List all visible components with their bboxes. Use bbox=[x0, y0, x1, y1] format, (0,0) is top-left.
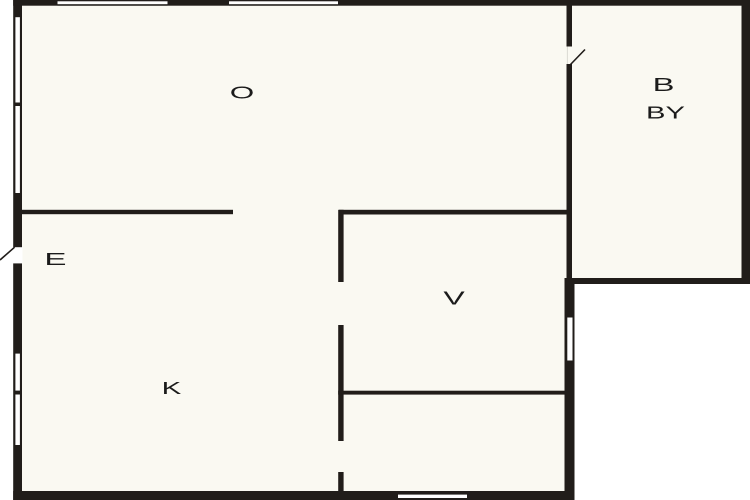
svg-text:V: V bbox=[443, 288, 465, 309]
svg-text:E: E bbox=[44, 249, 66, 269]
svg-text:BY: BY bbox=[646, 103, 685, 123]
svg-text:O: O bbox=[230, 83, 255, 103]
svg-text:K: K bbox=[162, 379, 183, 399]
svg-text:B: B bbox=[653, 75, 675, 95]
